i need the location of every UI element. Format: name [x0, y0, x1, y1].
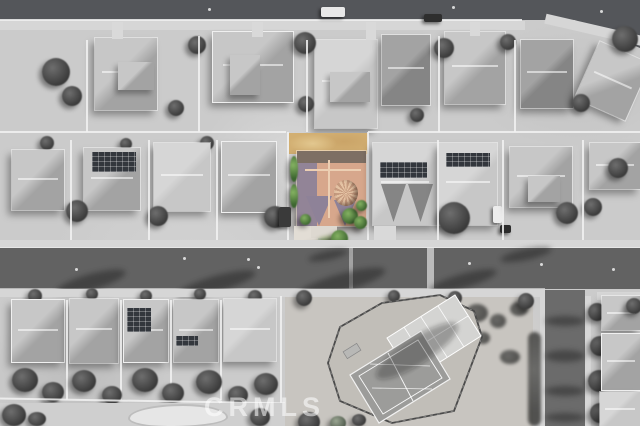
road-dot	[600, 10, 603, 13]
road-dot	[247, 258, 250, 261]
house	[445, 32, 505, 104]
shrub-green	[300, 214, 311, 225]
driveway	[112, 22, 123, 39]
lot-wall	[438, 36, 440, 132]
lot-wall	[582, 140, 584, 240]
house	[12, 150, 64, 210]
road-dot	[75, 268, 78, 271]
road-dot	[257, 266, 260, 269]
tree	[608, 158, 628, 178]
tree-shadow	[545, 316, 585, 326]
hedge-row	[528, 332, 541, 426]
road-dot	[208, 8, 211, 11]
mls-watermark: CRMLS	[204, 392, 325, 423]
tree-shadow	[545, 386, 585, 396]
lot-wall	[514, 40, 516, 132]
house-wing	[330, 72, 370, 102]
house	[154, 143, 210, 211]
lot-wall	[502, 140, 504, 240]
tree	[584, 198, 602, 216]
subject-lot-wall	[367, 132, 369, 246]
tree	[438, 202, 470, 234]
road-dot	[452, 6, 455, 9]
tree	[572, 94, 590, 112]
tree	[188, 36, 206, 54]
house	[382, 35, 430, 105]
lot-wall	[66, 300, 68, 400]
car	[321, 7, 345, 17]
house	[174, 300, 218, 362]
tree-shadow	[545, 413, 585, 422]
tree	[28, 412, 46, 426]
shrub-green	[354, 216, 367, 229]
lot-wall	[437, 140, 439, 240]
tree	[132, 368, 158, 392]
subject-roof-top-slope	[297, 151, 366, 163]
house	[521, 40, 573, 108]
subject-lot-wall	[287, 132, 289, 246]
house	[70, 299, 118, 363]
tree	[434, 38, 454, 58]
house-wing	[230, 55, 260, 95]
tree	[296, 290, 312, 306]
driveway	[252, 22, 263, 37]
lot-wall	[0, 131, 286, 133]
solar-panels	[176, 336, 198, 346]
tree	[72, 370, 96, 392]
lot-wall	[368, 131, 640, 133]
road-dot	[183, 257, 186, 260]
car	[424, 14, 442, 22]
solar-panels	[92, 152, 136, 172]
house-wing	[528, 176, 560, 202]
lot-wall	[120, 300, 122, 400]
tree	[2, 404, 26, 426]
hedge-green	[290, 156, 298, 182]
street-crossing	[427, 248, 434, 289]
aerial-photo: CRMLS	[0, 0, 640, 426]
tree	[410, 108, 424, 122]
road-dot	[468, 262, 471, 265]
house-wing	[118, 62, 154, 90]
tree	[612, 26, 638, 52]
subject-ridge	[305, 169, 361, 171]
subject-rotunda-roof	[334, 180, 358, 206]
car	[279, 207, 291, 227]
house	[600, 392, 640, 426]
tree	[148, 206, 168, 226]
hedge-green	[290, 184, 298, 208]
house	[224, 299, 276, 361]
road-dot	[540, 263, 543, 266]
house	[602, 334, 640, 390]
solar-panels	[446, 153, 490, 167]
lot-wall	[306, 40, 308, 132]
house	[12, 300, 64, 362]
tree	[62, 86, 82, 106]
car	[493, 206, 502, 223]
lot-wall	[86, 40, 88, 132]
lot-wall	[216, 140, 218, 240]
tree	[168, 100, 184, 116]
lot-wall	[70, 140, 72, 240]
tree	[42, 58, 70, 86]
tree-shadow	[545, 350, 585, 362]
lot-wall	[148, 140, 150, 240]
tree	[102, 386, 122, 404]
shrub-green	[356, 200, 367, 211]
tree	[294, 32, 316, 54]
tree	[194, 288, 206, 300]
road-dot	[612, 268, 615, 271]
driveway	[470, 22, 480, 36]
driveway	[366, 22, 376, 40]
tree	[196, 370, 222, 394]
lot-wall	[198, 36, 200, 132]
tree	[556, 202, 578, 224]
tree	[12, 368, 38, 392]
sports-court-complex	[322, 289, 522, 426]
tree	[626, 298, 640, 314]
tree	[40, 136, 54, 150]
solar-panels	[127, 308, 151, 332]
solar-panels	[380, 162, 427, 178]
house	[222, 142, 276, 212]
